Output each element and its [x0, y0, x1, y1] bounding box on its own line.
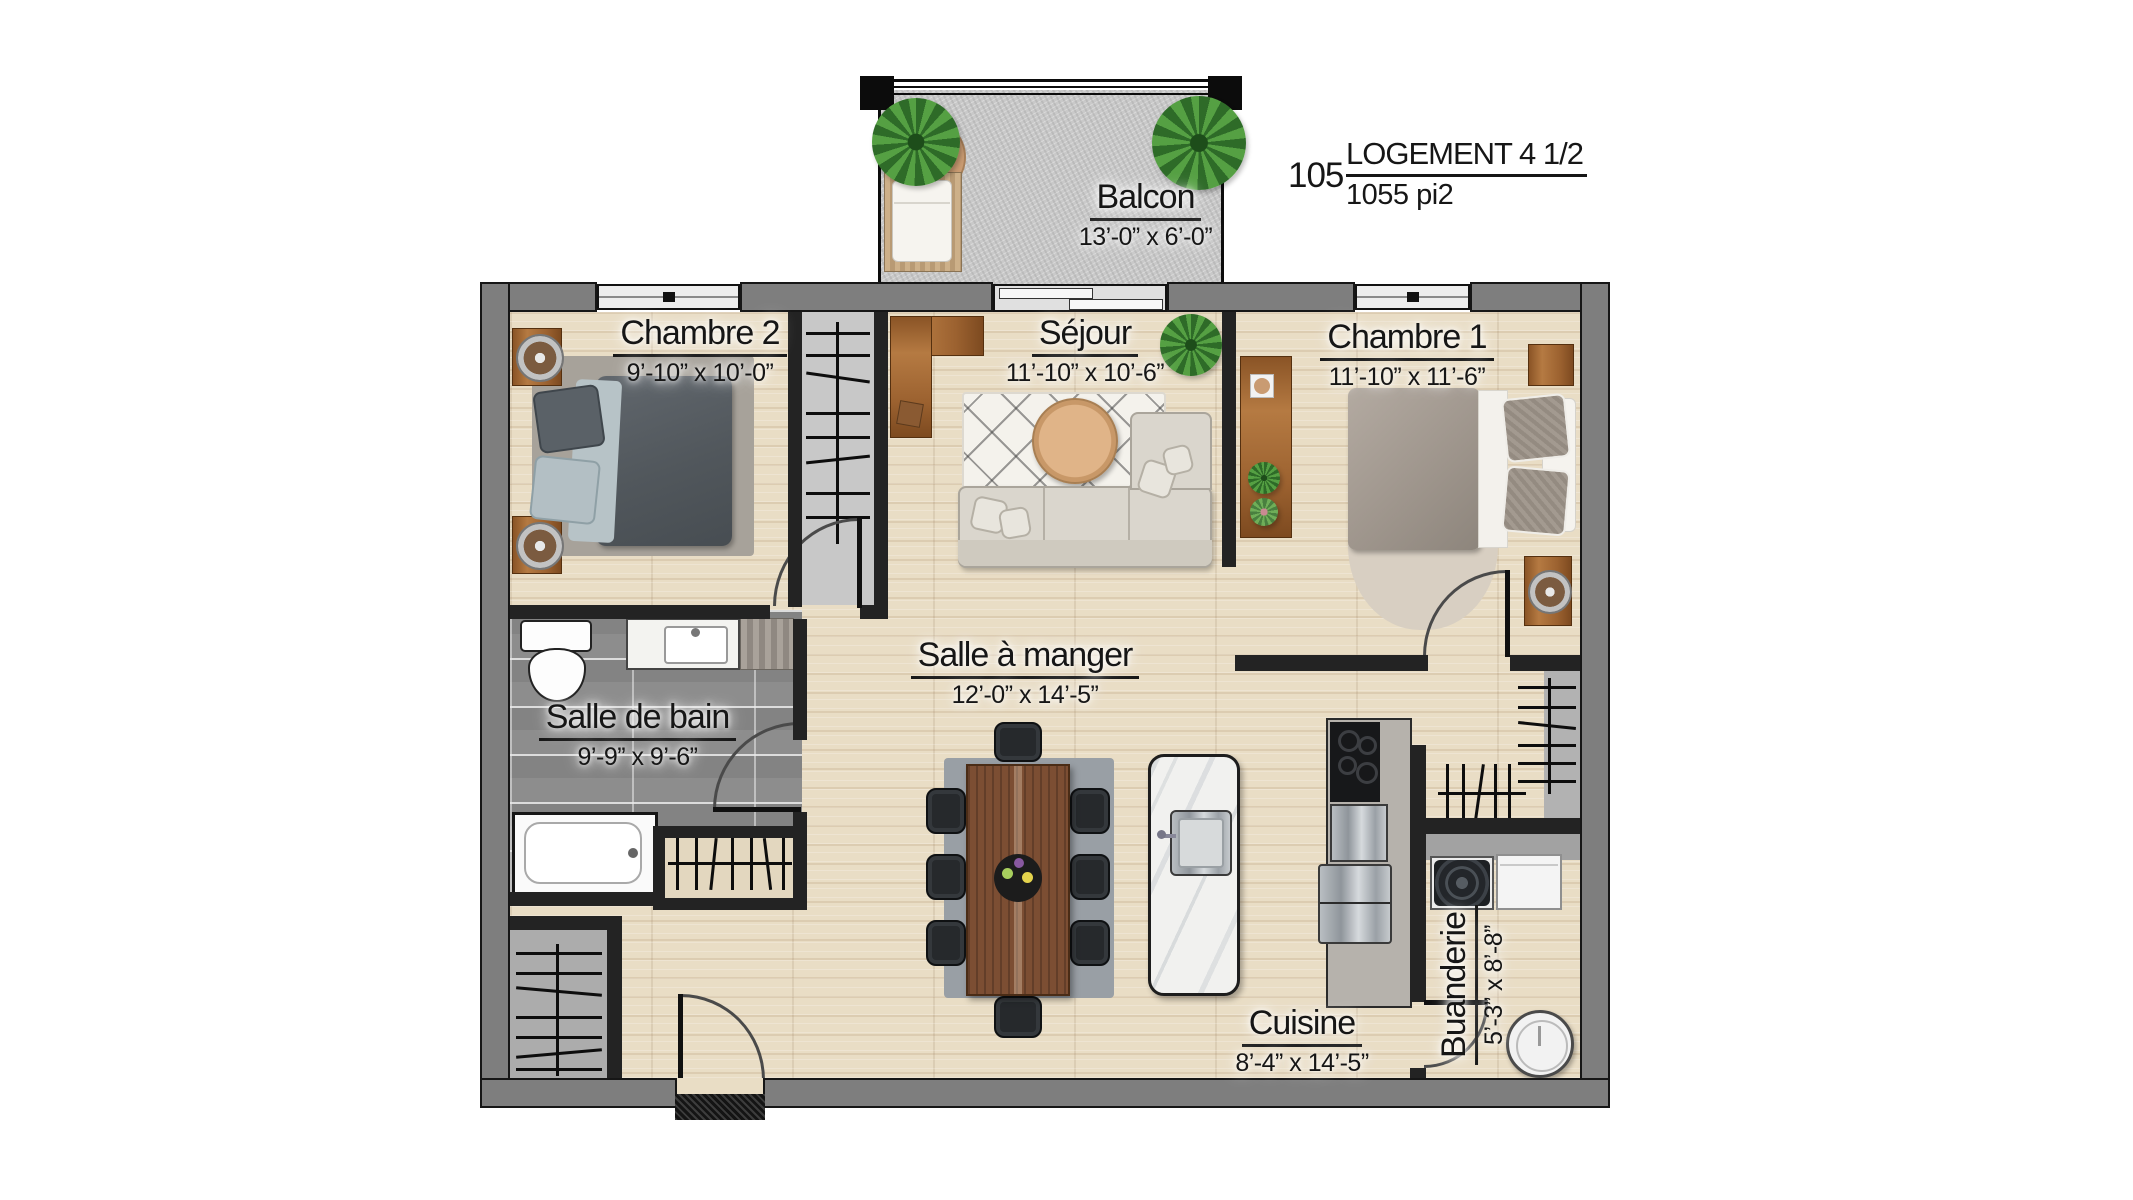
window — [1355, 284, 1470, 310]
cuisine-label: Cuisine 8’-4” x 14’-5” — [1192, 1006, 1412, 1076]
dining-chair — [926, 788, 966, 834]
plant-icon — [1248, 462, 1280, 494]
room-name: Buanderie — [1437, 905, 1478, 1065]
hanger-icon — [1518, 686, 1576, 689]
room-name: Salle à manger — [911, 638, 1140, 679]
door-leaf — [713, 807, 801, 812]
wall — [510, 916, 622, 930]
salle-a-manger-label: Salle à manger 12’-0” x 14’-5” — [900, 638, 1150, 708]
pillow — [1501, 465, 1571, 536]
room-dimensions: 11’-10” x 11’-6” — [1302, 364, 1512, 390]
pillow — [998, 506, 1033, 541]
speaker-icon — [1528, 570, 1572, 614]
dining-chair — [926, 920, 966, 966]
sliding-door-panel — [1069, 299, 1163, 310]
burner-icon — [1338, 730, 1360, 752]
room-dimensions: 13’-0” x 6’-0” — [1058, 224, 1233, 250]
hanger-icon — [806, 492, 870, 495]
hanger-icon — [806, 412, 870, 415]
hanger-icon — [1494, 764, 1497, 820]
sofa-backrest — [958, 540, 1212, 566]
hanger-icon — [1508, 764, 1511, 820]
wall — [874, 312, 888, 607]
cushion-seam — [894, 202, 950, 204]
room-dimensions: 8’-4” x 14’-5” — [1192, 1050, 1412, 1076]
room-dimensions: 12’-0” x 14’-5” — [900, 682, 1150, 708]
room-name: Chambre 2 — [613, 316, 786, 357]
hanger-icon — [516, 952, 602, 955]
chambre2-label: Chambre 2 9’-10” x 10’-0” — [600, 316, 800, 386]
balcony-railing — [894, 86, 1208, 88]
sofa-cushion-seam — [1043, 488, 1045, 540]
hanger-icon — [516, 972, 602, 975]
sliding-door-panel — [999, 288, 1093, 299]
wall — [653, 826, 807, 838]
wall — [607, 930, 622, 1078]
wall — [510, 605, 770, 619]
hanger-icon — [806, 436, 870, 439]
dining-chair — [926, 854, 966, 900]
vanity-cabinet — [740, 618, 794, 670]
unit-area: 1055 pi2 — [1346, 179, 1587, 212]
hanger-icon — [1462, 764, 1465, 820]
wall — [793, 619, 807, 740]
door-leaf — [857, 518, 862, 608]
hanger-icon — [806, 354, 870, 357]
plant-icon — [872, 98, 960, 186]
wall — [1222, 312, 1236, 567]
hanger-icon — [731, 838, 734, 890]
closet-hanger-rail — [1438, 792, 1526, 795]
faucet-icon — [691, 628, 700, 637]
closet-hanger-rail — [1548, 678, 1551, 794]
dining-chair — [994, 722, 1042, 762]
fruit-icon — [1022, 872, 1033, 883]
wall — [480, 282, 510, 1108]
hanger-icon — [516, 1068, 602, 1071]
dining-chair — [1070, 788, 1110, 834]
dishwasher — [1330, 804, 1388, 862]
sejour-label: Séjour 11’-10” x 10’-6” — [990, 316, 1180, 386]
lounge-cushion — [892, 180, 952, 262]
wall — [1580, 282, 1610, 1108]
room-name: Séjour — [1032, 316, 1138, 357]
hanger-icon — [676, 838, 679, 890]
wall — [1410, 1068, 1426, 1078]
room-dimensions: 11’-10” x 10’-6” — [990, 360, 1180, 386]
plant-icon — [1152, 96, 1246, 190]
wall — [653, 898, 807, 910]
succulent-icon — [1250, 498, 1278, 526]
wall — [740, 282, 993, 312]
pillow — [1501, 393, 1571, 463]
drain-icon — [628, 848, 638, 858]
wall — [860, 605, 888, 619]
wall — [510, 892, 655, 906]
fruit-icon — [1002, 868, 1013, 879]
room-dimensions: 5’-3” x 8’-8” — [1481, 880, 1507, 1090]
pillow — [529, 455, 601, 526]
balcon-label: Balcon 13’-0” x 6’-0” — [1058, 180, 1233, 250]
bathtub-basin — [524, 822, 642, 884]
wall — [653, 838, 665, 898]
wall — [1410, 818, 1580, 834]
hanger-icon — [516, 1036, 602, 1039]
salle-de-bain-label: Salle de bain 9’-9” x 9’-6” — [520, 700, 755, 770]
closet-hanger-rail — [668, 862, 792, 865]
dining-chair — [1070, 854, 1110, 900]
door-leaf — [1505, 570, 1510, 657]
floor-plan: Balcon 13’-0” x 6’-0” 105 LOGEMENT 4 1/2… — [0, 0, 2133, 1200]
dining-chair — [994, 996, 1042, 1038]
unit-number: 105 — [1288, 156, 1343, 196]
fruit-icon — [1014, 858, 1024, 868]
doormat — [675, 1094, 765, 1120]
room-dimensions: 9’-9” x 9’-6” — [520, 744, 755, 770]
fridge — [1318, 864, 1392, 944]
entry-door-leaf — [678, 994, 683, 1080]
wall — [1510, 655, 1580, 671]
sofa-cushion-seam — [1128, 488, 1130, 540]
plant-pot — [1254, 378, 1270, 394]
hanger-icon — [1518, 780, 1576, 783]
hanger-icon — [1446, 764, 1449, 820]
hanger-icon — [1518, 706, 1576, 709]
burner-icon — [1356, 762, 1378, 784]
nightstand — [1528, 344, 1574, 386]
water-heater-valve — [1538, 1026, 1541, 1046]
wall — [1235, 655, 1428, 671]
pillow — [532, 384, 606, 455]
sink-basin — [1178, 818, 1224, 868]
hanger-icon — [806, 332, 870, 335]
room-name: Cuisine — [1242, 1006, 1362, 1047]
hanger-icon — [1518, 762, 1576, 765]
balcony-railing — [894, 93, 1208, 95]
hanger-icon — [516, 1016, 602, 1019]
speaker-icon — [516, 334, 564, 382]
room-name: Balcon — [1090, 180, 1202, 221]
speaker-box — [896, 400, 924, 428]
burner-icon — [1358, 736, 1377, 755]
fridge-door-seam — [1320, 902, 1390, 904]
room-dimensions: 9’-10” x 10’-0” — [600, 360, 800, 386]
coffee-table — [1032, 398, 1118, 484]
hanger-icon — [750, 838, 753, 890]
closet-hanger-rail — [556, 944, 559, 1076]
buanderie-label: Buanderie 5’-3” x 8’-8” — [1437, 880, 1507, 1090]
dining-chair — [1070, 920, 1110, 966]
dryer-seam — [1500, 864, 1558, 866]
speaker-icon — [516, 522, 564, 570]
balcony-post — [860, 76, 894, 110]
room-name: Chambre 1 — [1320, 320, 1493, 361]
unit-type: LOGEMENT 4 1/2 — [1346, 136, 1587, 177]
burner-icon — [1338, 756, 1357, 775]
room-name: Salle de bain — [539, 700, 737, 741]
balcony-railing — [894, 79, 1208, 82]
wall — [480, 1078, 677, 1108]
hanger-icon — [782, 838, 785, 890]
faucet-icon — [1157, 830, 1166, 839]
wall — [1167, 282, 1355, 312]
bed — [1348, 388, 1480, 550]
chambre1-label: Chambre 1 11’-10” x 11’-6” — [1302, 320, 1512, 390]
hanger-icon — [695, 838, 698, 890]
plan-title: LOGEMENT 4 1/2 1055 pi2 — [1346, 136, 1587, 212]
water-heater-ring — [1516, 1020, 1568, 1072]
wall — [1410, 745, 1426, 1002]
window — [597, 284, 740, 310]
hanger-icon — [1518, 744, 1576, 747]
